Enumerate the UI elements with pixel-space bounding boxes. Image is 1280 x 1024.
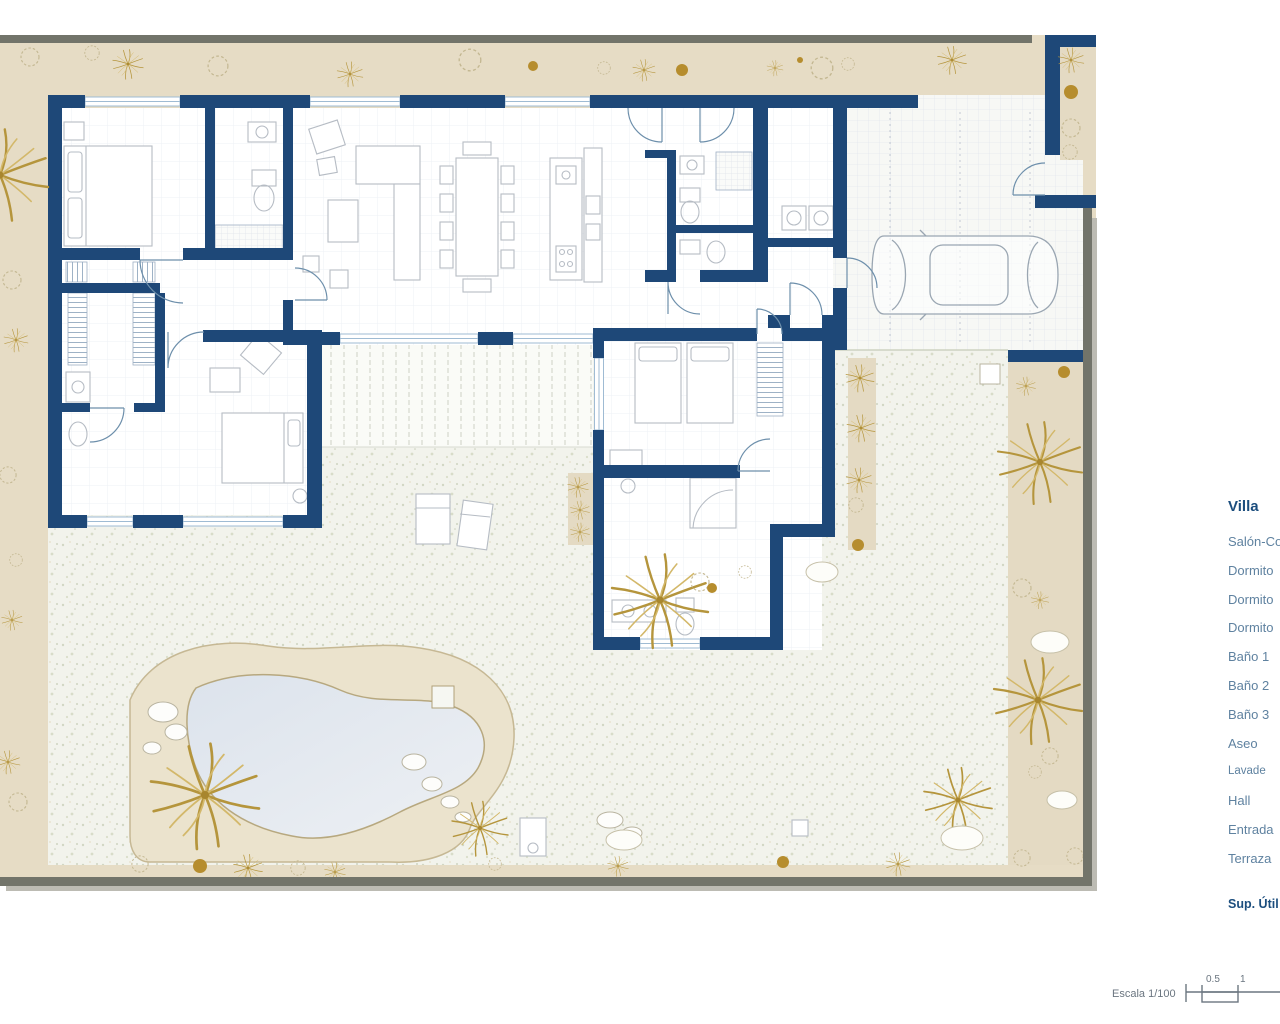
legend-item-bano1: Baño 1 [1228,649,1280,664]
floorplan-drawing [0,0,1280,1024]
pool-steps [432,686,454,708]
legend-footer-sup-util: Sup. Útil [1228,897,1279,911]
legend-item-hall: Hall [1228,793,1280,808]
legend-item-bano3: Baño 3 [1228,707,1280,722]
car [872,230,1058,320]
legend-item-lavadero: Lavade [1228,765,1280,777]
kitchen-units [550,148,602,282]
scale-label: Escala 1/100 [1112,988,1176,1000]
legend-item-entrada: Entrada [1228,822,1280,837]
scale-bar [1186,984,1280,1002]
legend-item-dormitorio3: Dormito [1228,620,1280,635]
scale-tick-half: 0.5 [1206,974,1220,985]
entrance-planting [1060,47,1096,160]
legend-item-salon: Salón-Co [1228,534,1280,549]
floorplan-page: { "legend": { "title": "Villa", "items":… [0,0,1280,1024]
scale-tick-one: 1 [1240,974,1246,985]
legend-title: Villa [1228,498,1259,515]
planting-strip-mid [848,358,876,550]
legend-item-dormitorio1: Dormito [1228,563,1280,578]
legend-item-aseo: Aseo [1228,736,1280,751]
legend-item-bano2: Baño 2 [1228,678,1280,693]
covered-porch [322,345,593,447]
legend-item-terraza: Terraza [1228,851,1280,866]
legend-item-dormitorio2: Dormito [1228,592,1280,607]
